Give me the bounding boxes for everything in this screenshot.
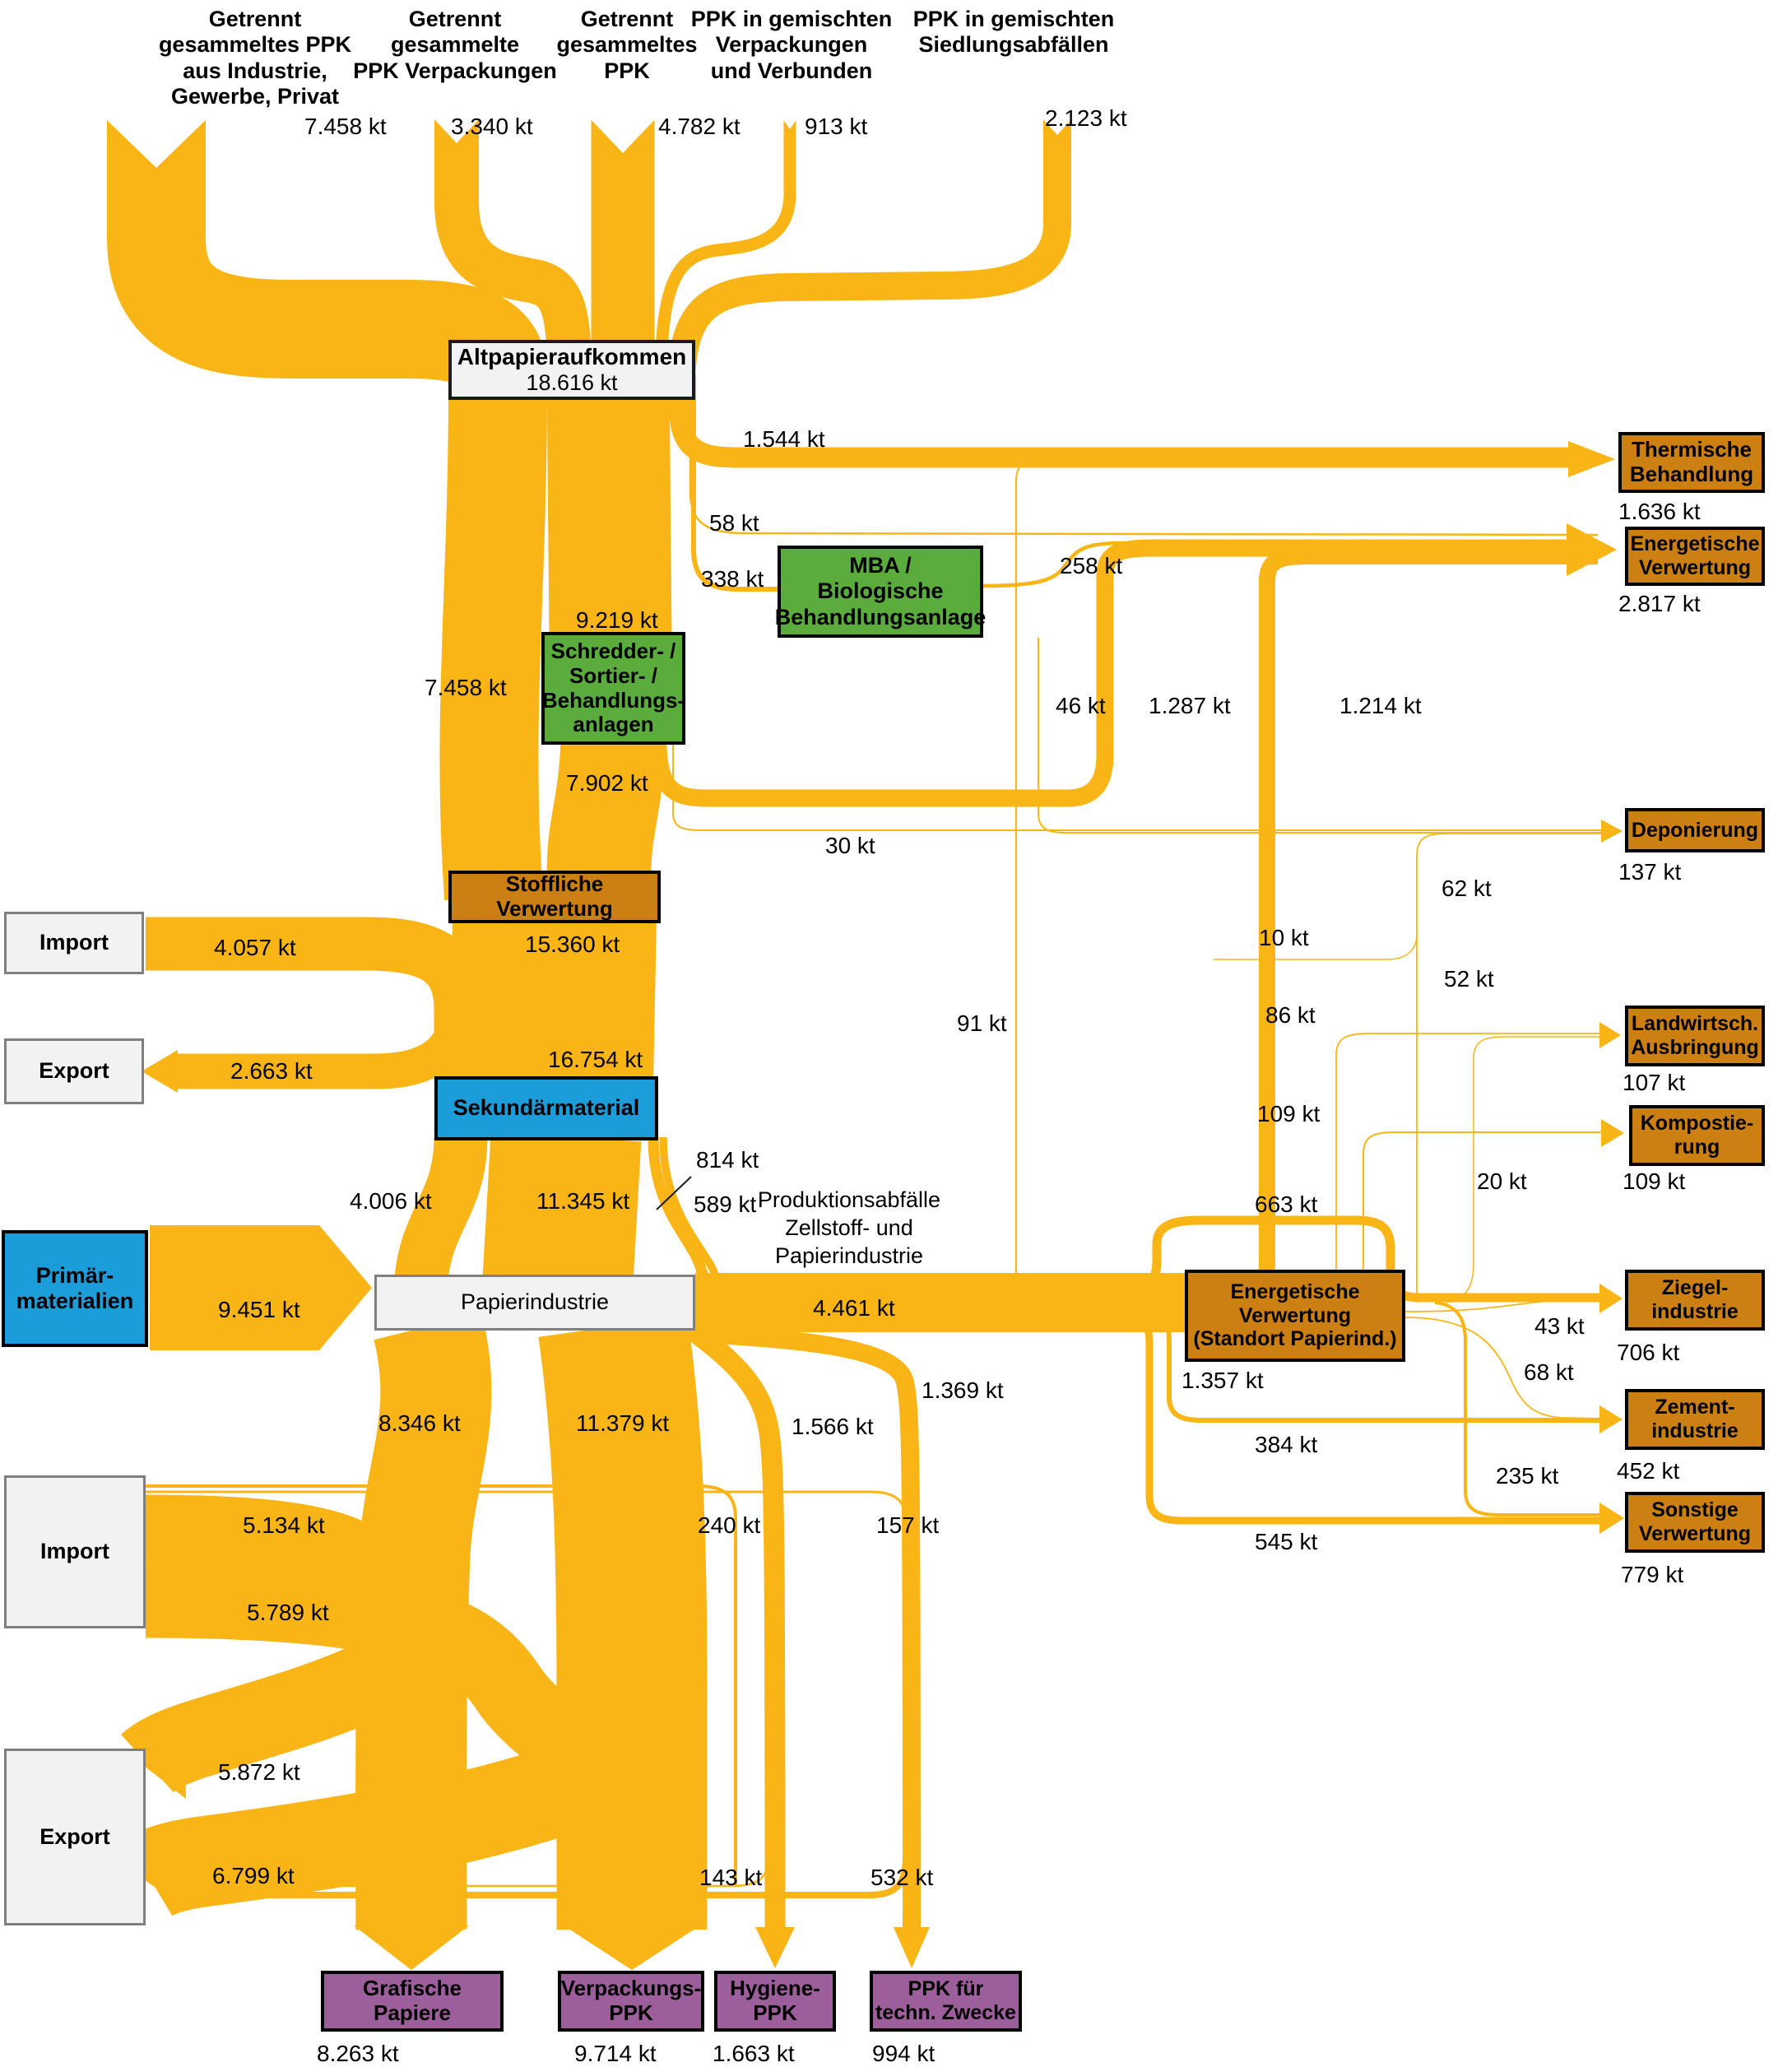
source-label-ppk-verpackungen-getrennt: GetrenntgesammeltePPK Verpackungen: [353, 7, 557, 84]
node-label-line: Papierindustrie: [461, 1289, 609, 1315]
node-label-line: PPK für: [908, 1977, 984, 2001]
flow-value-label: 68 kt: [1524, 1359, 1574, 1386]
node-import-altpapier: Import: [4, 912, 144, 974]
source-label-ppk-getrennt: GetrenntgesammeltesPPK: [556, 7, 697, 84]
node-stoffliche-verwertung: Stoffliche Verwertung: [448, 871, 661, 923]
flow-value-label: 589 kt: [694, 1191, 756, 1218]
flow-value-label: 16.754 kt: [548, 1047, 643, 1073]
flow-value-label: 7.458 kt: [304, 114, 387, 140]
flow-value-label: 663 kt: [1255, 1191, 1317, 1218]
flow-value-label: 43 kt: [1534, 1313, 1585, 1340]
flow-value-label: 109 kt: [1257, 1101, 1320, 1127]
node-label-line: Sonstige: [1651, 1498, 1739, 1522]
flow-value-label: 62 kt: [1441, 876, 1492, 902]
flow-value-label: 532 kt: [870, 1865, 933, 1891]
node-export-papier: Export: [4, 1749, 146, 1925]
node-label-line: Import: [39, 930, 109, 955]
flow-value-label: 779 kt: [1621, 1562, 1683, 1588]
source-label-line: PPK Verpackungen: [353, 58, 557, 84]
source-label-line: und Verbunden: [691, 58, 893, 84]
flow-value-label: 1.663 kt: [713, 2041, 795, 2067]
flow-value-label: 338 kt: [701, 566, 764, 592]
source-label-line: Gewerbe, Privat: [159, 84, 351, 109]
flow-value-label: 4.006 kt: [350, 1188, 432, 1215]
node-label-line: Deponierung: [1632, 819, 1758, 843]
source-label-ppk-gemischte-verpackungen: PPK in gemischtenVerpackungenund Verbund…: [691, 7, 893, 84]
flow-value-label: 5.872 kt: [218, 1759, 300, 1786]
node-label-line: Export: [39, 1824, 110, 1850]
flow-value-label: 143 kt: [699, 1865, 762, 1891]
node-label-line: Kompostie-: [1641, 1112, 1754, 1136]
flow-value-label: 1.636 kt: [1618, 499, 1701, 525]
flow-value-label: 9.219 kt: [576, 607, 658, 634]
source-label-line: Siedlungsabfällen: [913, 32, 1115, 58]
flow-value-label: 8.346 kt: [378, 1410, 461, 1437]
source-label-ppk-industrie-gewerbe-privat: Getrenntgesammeltes PPKaus Industrie,Gew…: [159, 7, 351, 109]
node-label-line: (Standort Papierind.): [1193, 1327, 1396, 1351]
flow-value-label: 4.782 kt: [658, 114, 740, 140]
flow-value-label: 91 kt: [957, 1010, 1007, 1037]
node-kompostierung: Kompostie-rung: [1629, 1105, 1765, 1166]
flow-value-label: 30 kt: [825, 833, 875, 859]
annotation-line: Papierindustrie: [758, 1243, 940, 1270]
flow-value-label: 46 kt: [1056, 693, 1106, 719]
node-label-line: Schredder- /: [551, 639, 676, 664]
flow-value-label: 109 kt: [1623, 1168, 1685, 1195]
node-label-line: techn. Zwecke: [875, 2001, 1016, 2025]
source-label-line: aus Industrie,: [159, 58, 351, 84]
node-zementindustrie: Zement-industrie: [1625, 1389, 1765, 1450]
flow-value-label: 706 kt: [1617, 1340, 1679, 1366]
node-label-line: Export: [39, 1058, 109, 1084]
node-label-line: Primär-: [36, 1263, 114, 1289]
flow-value-label: 86 kt: [1265, 1002, 1316, 1029]
flow-value-label: 814 kt: [696, 1147, 759, 1173]
node-export-altpapier: Export: [4, 1038, 144, 1104]
flow-value-label: 1.369 kt: [922, 1377, 1004, 1404]
flow-value-label: 258 kt: [1060, 553, 1122, 579]
flow-value-label: 452 kt: [1617, 1458, 1679, 1484]
node-label-line: Zement-: [1655, 1396, 1734, 1419]
flow-value-label: 10 kt: [1259, 925, 1309, 951]
node-label-line: Import: [40, 1539, 109, 1564]
source-label-line: PPK in gemischten: [691, 7, 893, 32]
node-label-line: Papiere: [374, 2001, 451, 2026]
node-sonstige-verwertung: SonstigeVerwertung: [1625, 1492, 1765, 1553]
flow-value-label: 4.057 kt: [214, 935, 296, 961]
node-label-line: Thermische: [1632, 438, 1752, 462]
flow-value-label: 8.263 kt: [317, 2041, 399, 2067]
node-label-line: rung: [1674, 1136, 1720, 1159]
flow-value-label: 235 kt: [1496, 1463, 1558, 1489]
node-label-line: Landwirtsch.: [1632, 1012, 1758, 1036]
node-label-line: Hygiene-: [730, 1976, 820, 2001]
flow-value-label: 7.902 kt: [566, 770, 648, 797]
source-label-ppk-siedlungsabfaelle: PPK in gemischtenSiedlungsabfällen: [913, 7, 1115, 58]
node-label-line: Behandlung: [1630, 462, 1753, 487]
node-altpapieraufkommen: Altpapieraufkommen18.616 kt: [448, 340, 695, 400]
flow-value-label: 2.663 kt: [230, 1058, 313, 1085]
node-label-line: Energetische: [1630, 532, 1759, 556]
flow-value-label: 9.451 kt: [218, 1297, 300, 1323]
flow-value-label: 20 kt: [1477, 1168, 1527, 1195]
node-primaermaterialien: Primär-materialien: [2, 1230, 148, 1347]
flow-value-label: 1.544 kt: [743, 426, 825, 453]
flow-value-label: 15.360 kt: [525, 931, 620, 958]
node-value: 18.616 kt: [526, 370, 617, 396]
flow-value-label: 11.345 kt: [536, 1188, 629, 1215]
node-label-line: Energetische: [1230, 1280, 1359, 1304]
flow-value-label: 1.214 kt: [1339, 693, 1422, 719]
flow-value-label: 52 kt: [1444, 966, 1494, 992]
flow-value-label: 9.714 kt: [574, 2041, 657, 2067]
node-label-line: MBA /: [849, 553, 912, 578]
node-ppk-fuer-techn-zwecke: PPK fürtechn. Zwecke: [870, 1971, 1022, 2032]
flow-value-label: 545 kt: [1255, 1529, 1317, 1555]
flow-value-label: 157 kt: [876, 1512, 939, 1539]
flow-value-label: 137 kt: [1618, 859, 1681, 885]
flow-value-label: 240 kt: [698, 1512, 760, 1539]
source-label-line: gesammeltes PPK: [159, 32, 351, 58]
node-label-line: industrie: [1651, 1300, 1739, 1324]
source-label-line: PPK in gemischten: [913, 7, 1115, 32]
node-label-line: anlagen: [573, 713, 653, 737]
source-label-line: gesammelte: [353, 32, 557, 58]
flow-value-label: 994 kt: [872, 2041, 935, 2067]
node-deponierung: Deponierung: [1625, 808, 1765, 852]
node-label-line: Behandlungsanlage: [775, 605, 987, 630]
flow-value-label: 58 kt: [709, 510, 759, 536]
node-energetische-verwertung-standort: EnergetischeVerwertung(Standort Papierin…: [1185, 1270, 1405, 1362]
node-sekundaermaterial: Sekundärmaterial: [434, 1076, 658, 1140]
flow-value-label: 5.789 kt: [247, 1600, 329, 1626]
node-ziegelindustrie: Ziegel-industrie: [1625, 1270, 1765, 1331]
annotation-line: Produktionsabfälle: [758, 1187, 940, 1215]
flow-value-label: 1.357 kt: [1182, 1368, 1264, 1394]
source-label-line: Getrennt: [159, 7, 351, 32]
node-label-line: Grafische: [363, 1976, 462, 2001]
annotation-produktionsabfaelle: ProduktionsabfälleZellstoff- undPapierin…: [758, 1187, 940, 1270]
source-label-line: Verpackungen: [691, 32, 893, 58]
flow-value-label: 1.287 kt: [1149, 693, 1231, 719]
sankey-labels-layer: Getrenntgesammeltes PPKaus Industrie,Gew…: [0, 0, 1792, 2067]
flow-value-label: 1.566 kt: [792, 1414, 874, 1440]
node-label-line: Ausbringung: [1631, 1036, 1759, 1060]
source-label-line: Getrennt: [556, 7, 697, 32]
node-label-line: Verwertung: [1239, 1304, 1351, 1328]
node-thermische-behandlung: ThermischeBehandlung: [1618, 432, 1765, 493]
flow-value-label: 913 kt: [805, 114, 867, 140]
source-label-line: gesammeltes: [556, 32, 697, 58]
flow-value-label: 3.340 kt: [451, 114, 533, 140]
node-label-line: PPK: [609, 2001, 652, 2026]
node-label-line: Verwertung: [1639, 1522, 1751, 1546]
node-label-line: PPK: [753, 2001, 796, 2026]
annotation-line: Zellstoff- und: [758, 1215, 940, 1243]
node-papierindustrie: Papierindustrie: [374, 1275, 695, 1331]
node-label-line: Verpackungs-: [561, 1976, 702, 2001]
node-label-line: Behandlungs-: [542, 689, 685, 713]
flow-value-label: 107 kt: [1623, 1070, 1685, 1096]
node-mba-biologische-behandlungsanlage: MBA /BiologischeBehandlungsanlage: [778, 546, 983, 638]
flow-value-label: 5.134 kt: [243, 1512, 325, 1539]
node-grafische-papiere: GrafischePapiere: [321, 1971, 504, 2032]
node-label-line: Sortier- /: [569, 664, 657, 689]
flow-value-label: 4.461 kt: [813, 1295, 895, 1321]
node-schredder-sortier-behandlungsanlagen: Schredder- /Sortier- /Behandlungs-anlage…: [541, 632, 685, 745]
node-label-line: industrie: [1651, 1419, 1739, 1443]
node-landwirtschaftliche-ausbringung: Landwirtsch.Ausbringung: [1625, 1006, 1765, 1066]
node-label-line: Stoffliche Verwertung: [452, 872, 657, 922]
source-label-line: PPK: [556, 58, 697, 84]
node-label-line: materialien: [16, 1289, 134, 1314]
node-label-line: Verwertung: [1639, 556, 1751, 580]
node-label-line: Sekundärmaterial: [453, 1095, 640, 1121]
node-label-line: Biologische: [817, 578, 943, 604]
node-label-line: Altpapieraufkommen: [457, 344, 687, 370]
flow-value-label: 7.458 kt: [425, 675, 507, 701]
node-import-papier: Import: [4, 1475, 146, 1628]
flow-value-label: 2.817 kt: [1618, 591, 1701, 617]
flow-value-label: 11.379 kt: [576, 1410, 669, 1437]
node-verpackungs-ppk: Verpackungs-PPK: [558, 1971, 704, 2032]
node-label-line: Ziegel-: [1662, 1276, 1729, 1300]
flow-value-label: 2.123 kt: [1045, 105, 1127, 132]
source-label-line: Getrennt: [353, 7, 557, 32]
flow-value-label: 6.799 kt: [212, 1863, 295, 1889]
sankey-diagram-canvas: Getrenntgesammeltes PPKaus Industrie,Gew…: [0, 0, 1792, 2067]
node-hygiene-ppk: Hygiene-PPK: [714, 1971, 836, 2032]
flow-value-label: 384 kt: [1255, 1432, 1317, 1458]
node-energetische-verwertung: EnergetischeVerwertung: [1625, 527, 1765, 586]
